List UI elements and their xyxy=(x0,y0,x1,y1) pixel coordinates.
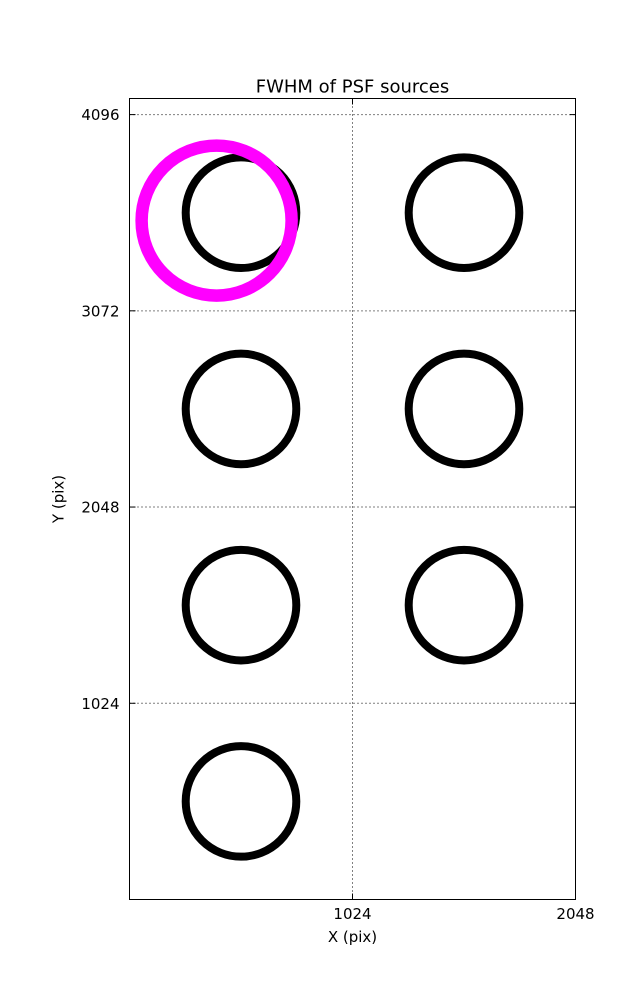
grid-layer xyxy=(130,99,576,900)
plot-canvas: 102420483072409610242048 FWHM of PSF sou… xyxy=(0,0,637,1000)
marker-layer xyxy=(142,146,520,857)
psf-source-marker xyxy=(186,746,297,857)
y-tick-label-1024: 1024 xyxy=(81,695,119,713)
x-tick-label-1024: 1024 xyxy=(333,905,371,923)
psf-source-marker xyxy=(409,157,520,268)
x-tick-label-2048: 2048 xyxy=(556,905,594,923)
figure: 102420483072409610242048 FWHM of PSF sou… xyxy=(0,0,637,1000)
x-axis-label: X (pix) xyxy=(328,928,377,946)
y-tick-label-3072: 3072 xyxy=(81,302,119,320)
y-axis-label: Y (pix) xyxy=(50,475,68,524)
psf-source-marker xyxy=(186,354,297,465)
y-tick-label-4096: 4096 xyxy=(81,106,119,124)
flagged-psf-source-marker xyxy=(142,146,292,296)
psf-source-marker xyxy=(409,354,520,465)
y-tick-label-2048: 2048 xyxy=(81,499,119,517)
chart-title: FWHM of PSF sources xyxy=(256,77,450,98)
psf-source-marker xyxy=(409,550,520,661)
psf-source-marker xyxy=(186,550,297,661)
